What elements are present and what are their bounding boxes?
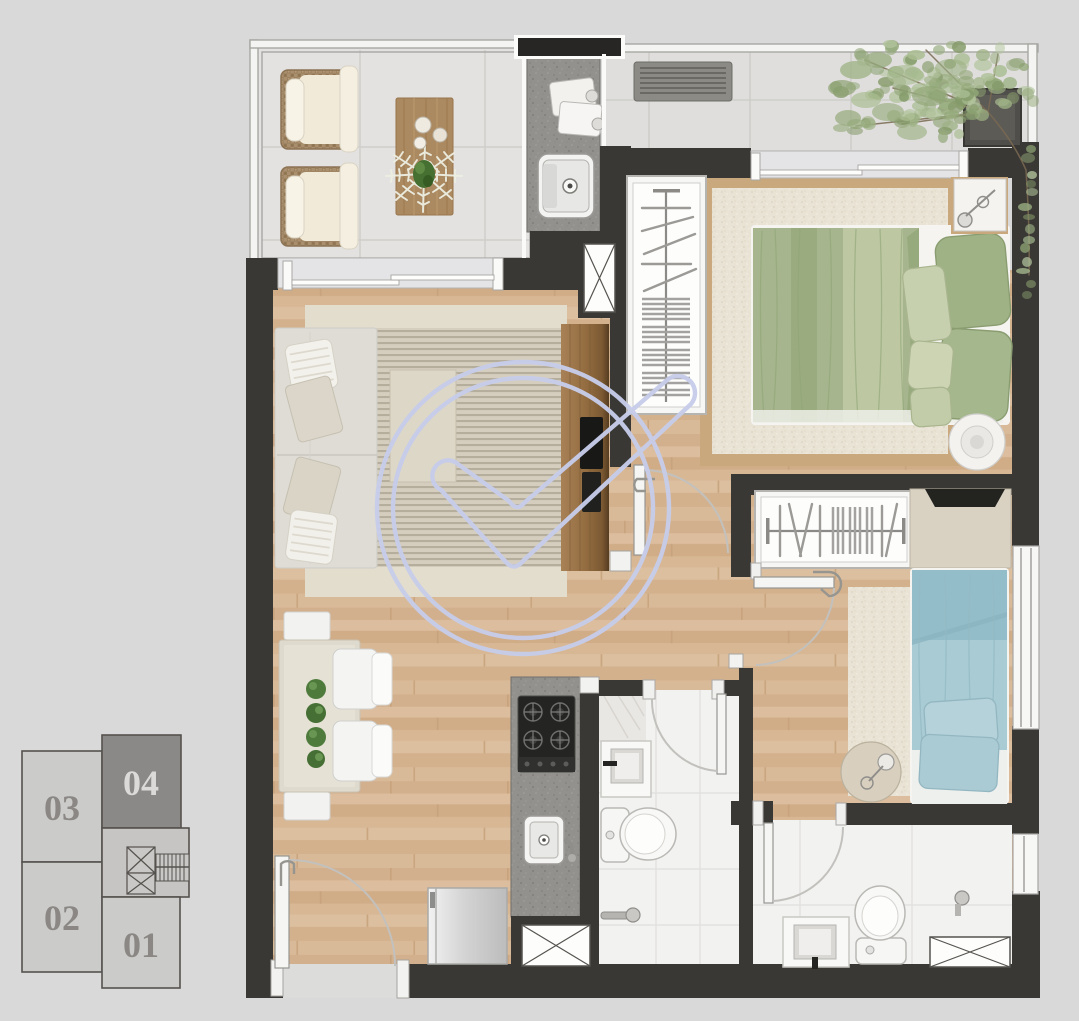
svg-text:04: 04 [123, 763, 159, 803]
svg-text:01: 01 [123, 925, 159, 965]
svg-text:03: 03 [44, 788, 80, 828]
svg-text:02: 02 [44, 898, 80, 938]
